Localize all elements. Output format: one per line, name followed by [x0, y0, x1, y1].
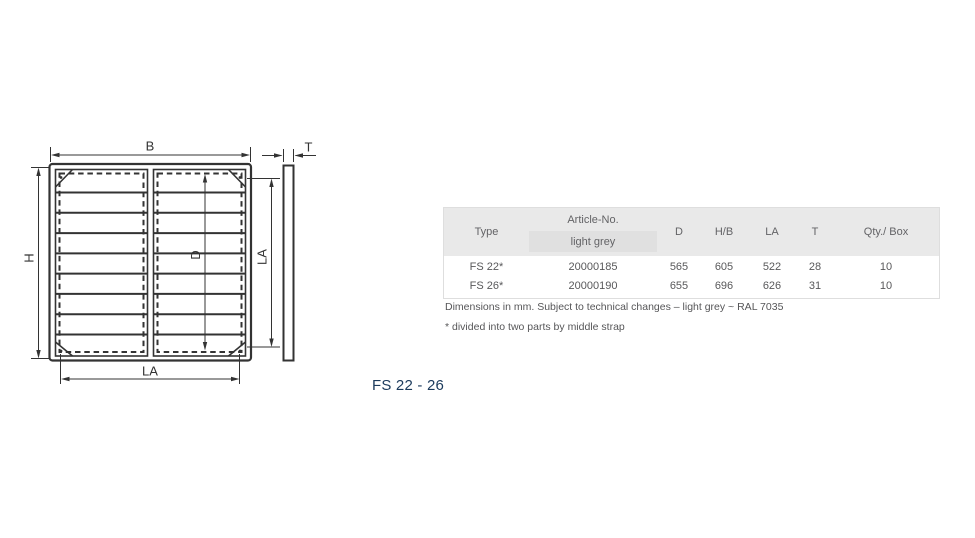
cell-hb: 696	[701, 280, 747, 292]
cell-hb: 605	[701, 261, 747, 273]
dim-label-h: H	[22, 253, 37, 262]
front-view	[50, 164, 252, 361]
cell-type: FS 22*	[444, 261, 529, 273]
cell-la: 626	[747, 280, 797, 292]
cell-article: 20000185	[529, 261, 657, 273]
spec-table-body: FS 22* 20000185 565 605 522 28 10 FS 26*…	[444, 256, 939, 298]
table-row: FS 26* 20000190 655 696 626 31 10	[444, 277, 939, 297]
cell-la: 522	[747, 261, 797, 273]
asterisk-note: * divided into two parts by middle strap	[445, 321, 625, 333]
cell-t: 28	[797, 261, 833, 273]
technical-drawing: B H D LA LA T	[0, 0, 340, 420]
header-type: Type	[444, 208, 529, 256]
cell-qty: 10	[833, 261, 939, 273]
header-qty-box: Qty./ Box	[833, 208, 939, 256]
header-article-colour: light grey	[529, 231, 657, 252]
dim-label-t: T	[305, 140, 313, 155]
cell-t: 31	[797, 280, 833, 292]
header-hb: H/B	[701, 208, 747, 256]
header-article-no: Article-No. light grey	[529, 208, 657, 256]
header-article-label: Article-No.	[529, 208, 657, 231]
cell-qty: 10	[833, 280, 939, 292]
cell-article: 20000190	[529, 280, 657, 292]
header-la: LA	[747, 208, 797, 256]
product-title: FS 22 - 26	[372, 377, 444, 394]
dim-label-la-horizontal: LA	[142, 364, 158, 379]
dim-label-d: D	[188, 250, 203, 259]
table-row: FS 22* 20000185 565 605 522 28 10	[444, 257, 939, 277]
side-view	[284, 166, 294, 361]
dim-label-la-vertical: LA	[255, 249, 270, 265]
header-d: D	[657, 208, 701, 256]
dimensions-note: Dimensions in mm. Subject to technical c…	[445, 301, 783, 313]
catalog-page: B H D LA LA T FS 22 - 26 Type Article-No…	[0, 0, 975, 538]
dim-label-b: B	[146, 139, 155, 154]
spec-table-header: Type Article-No. light grey D H/B LA T Q…	[444, 208, 939, 256]
spec-table: Type Article-No. light grey D H/B LA T Q…	[443, 207, 940, 299]
cell-type: FS 26*	[444, 280, 529, 292]
cell-d: 565	[657, 261, 701, 273]
header-t: T	[797, 208, 833, 256]
cell-d: 655	[657, 280, 701, 292]
